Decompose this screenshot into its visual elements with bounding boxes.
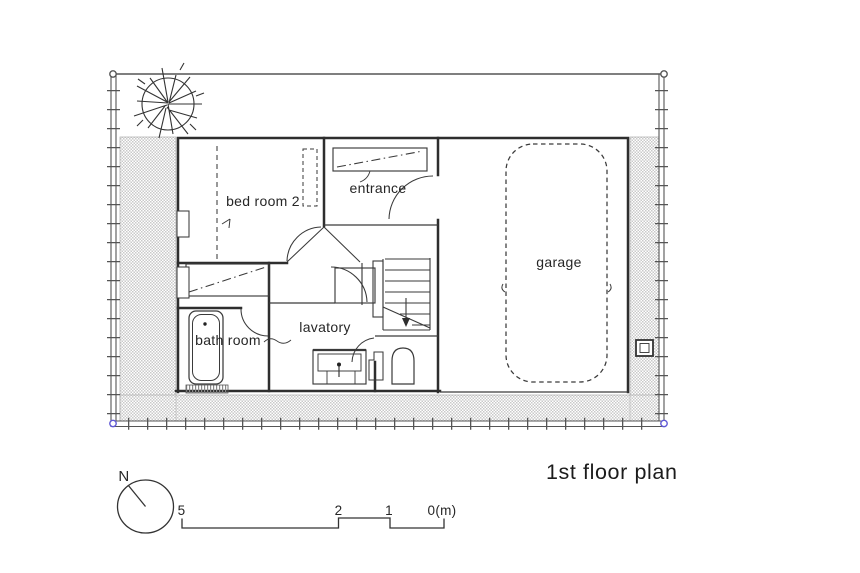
- interior-thin-lines: [186, 225, 628, 392]
- corner-marker-top-left: [110, 71, 116, 77]
- scale-bar: 5 2 1 0(m): [178, 503, 457, 528]
- bathroom-step: [186, 385, 228, 393]
- garage-label: garage: [536, 254, 581, 270]
- closet-diagonal: [189, 267, 266, 292]
- floor-plan-page: bed room 2 entrance garage lavatory bath…: [0, 0, 860, 573]
- hall-door-arc: [287, 227, 321, 261]
- scale-tick-0: 0(m): [428, 503, 457, 518]
- lavatory-label: lavatory: [299, 319, 350, 335]
- scale-tick-1: 1: [385, 503, 393, 518]
- scale-tick-5: 5: [178, 503, 186, 518]
- corner-marker-bottom-right: [661, 420, 667, 426]
- boundary-corner-markers: [110, 71, 667, 427]
- scale-tick-2: 2: [335, 503, 343, 518]
- north-arrow-icon: [118, 480, 174, 533]
- entrance-label: entrance: [350, 180, 407, 196]
- meter-icon: [636, 340, 653, 356]
- bathroom-label: bath room: [195, 332, 261, 348]
- stairs-icon: [373, 258, 430, 330]
- bedroom-dashed-cabinet: [303, 149, 317, 206]
- scale-bar-line: [182, 518, 444, 528]
- floor-plan-drawing: bed room 2 entrance garage lavatory bath…: [0, 0, 860, 573]
- corner-marker-bottom-left: [110, 420, 116, 426]
- hall-cupboard: [335, 268, 375, 303]
- bathtub-drain: [203, 322, 206, 325]
- shoe-cabinet-diagonal: [337, 151, 423, 167]
- north-label: N: [118, 468, 129, 485]
- bedroom-label: bed room 2: [226, 193, 300, 209]
- page-title: 1st floor plan: [546, 460, 678, 484]
- corner-marker-top-right: [661, 71, 667, 77]
- fixtures: [177, 211, 653, 393]
- car-mirrors: [502, 284, 611, 292]
- toilet-icon: [392, 348, 414, 384]
- bedroom-window-bay: [177, 211, 189, 237]
- hall-door-leaves: [287, 227, 360, 262]
- closet-window-bay: [177, 267, 189, 298]
- site-boundary: [111, 74, 664, 427]
- bedroom-mark: [222, 219, 230, 228]
